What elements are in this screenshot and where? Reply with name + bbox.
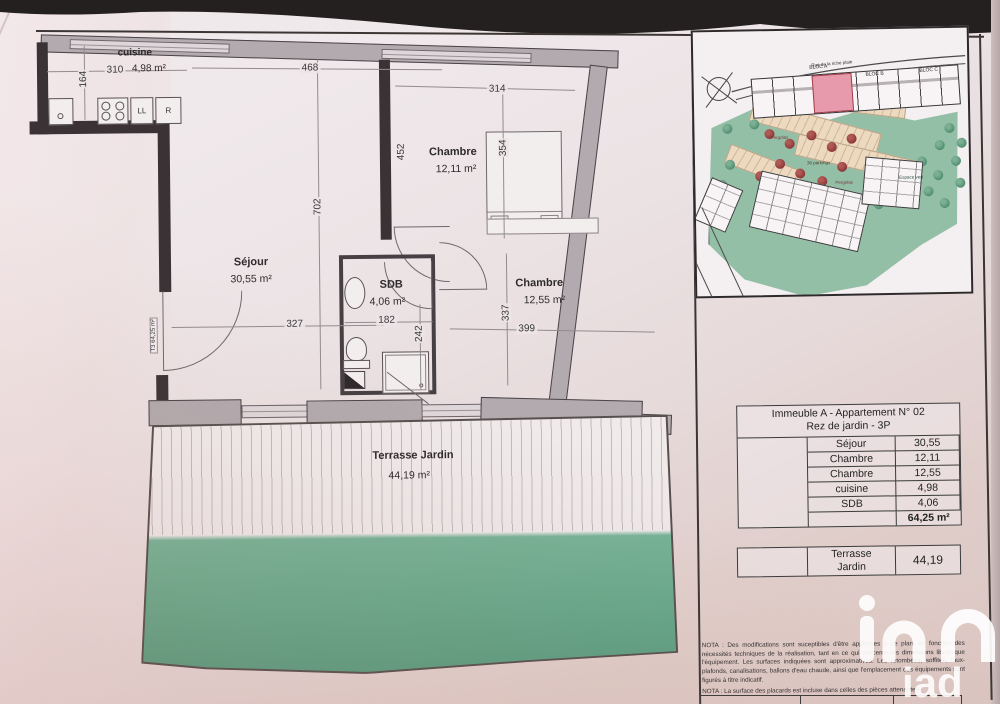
floor-plan: T3 64,25 m² LL R — [26, 12, 693, 704]
tree-green-icon — [940, 198, 950, 208]
table-row-value: 30,55 — [896, 435, 960, 451]
dim-702: 702 — [312, 197, 323, 216]
dim-182: 182 — [376, 315, 397, 326]
washbasin-icon — [344, 277, 365, 309]
lower-building — [861, 157, 923, 210]
bloc-b-label: BLOC B — [865, 71, 884, 78]
dim-399: 399 — [516, 323, 537, 334]
tree-green-icon — [725, 160, 735, 170]
window-chambre1 — [381, 49, 531, 63]
room-area-terrasse: 44,19 m² — [388, 469, 430, 481]
iad-watermark-logo: iad — [852, 590, 1000, 704]
tree-green-icon — [957, 138, 967, 148]
dim-337: 337 — [500, 303, 511, 322]
fridge-box: R — [155, 97, 181, 124]
tree-green-icon — [955, 178, 965, 188]
terrace-label-line2: Jardin — [808, 560, 895, 574]
room-label-sdb: SDB — [380, 279, 403, 291]
washer-label: LL — [131, 98, 152, 123]
table-row-label: SDB — [808, 496, 896, 512]
room-area-sdb: 4,06 m² — [370, 296, 406, 308]
toilet-bowl-icon — [346, 337, 367, 361]
kitchen-sink-icon — [48, 98, 73, 125]
dim-314: 314 — [487, 83, 508, 94]
duct-icon — [343, 371, 365, 389]
dim-452: 452 — [396, 142, 407, 161]
stove-icon — [97, 97, 128, 124]
highlighted-unit — [812, 73, 855, 114]
table-row-value: 12,11 — [896, 450, 960, 466]
table-row-label: Séjour — [808, 436, 896, 452]
terrace-spacer-cell — [738, 548, 808, 577]
table-spacer-cell — [738, 438, 809, 528]
shower-icon — [382, 351, 429, 393]
wall-sejour-left — [158, 120, 172, 292]
entrance-door-arc — [162, 290, 243, 371]
dim-line — [395, 85, 575, 90]
parkings-label: 36 parkings — [807, 160, 830, 165]
bloc-a-label: BLOC A — [809, 64, 827, 71]
table-row-value: 12,55 — [896, 465, 960, 481]
tree-green-icon — [944, 123, 954, 133]
tree-red-icon — [806, 130, 816, 140]
pergolas-label: Pergolas — [771, 135, 789, 140]
iad-watermark-text: iad — [902, 659, 963, 704]
dim-line — [450, 328, 655, 332]
tree-red-icon — [775, 159, 785, 169]
room-label-sejour: Séjour — [234, 256, 268, 268]
dim-354: 354 — [498, 138, 509, 157]
tree-red-icon — [847, 134, 857, 144]
terrace-value-cell: 44,19 — [896, 545, 960, 574]
toilet-tank-icon — [343, 360, 370, 369]
tree-green-icon — [722, 124, 732, 134]
table-row-label: cuisine — [808, 481, 896, 497]
terrace-table: Terrasse Jardin 44,19 — [737, 544, 961, 577]
room-label-chambre2: Chambre — [515, 277, 563, 289]
wall-bottom-a — [148, 399, 241, 426]
window-bottom-b — [421, 404, 481, 418]
room-area-chambre1: 12,11 m² — [436, 163, 477, 175]
entrance-type-label: T3 64,25 m² — [150, 317, 158, 353]
room-area-cuisine: 4,98 m² — [132, 63, 166, 74]
chambre2-door-leaf — [439, 289, 487, 291]
area-table-title: Immeuble A - Appartement N° 02 Rez de ja… — [737, 403, 959, 438]
table-row-value: 4,06 — [896, 495, 960, 511]
compass-icon — [701, 72, 738, 109]
room-area-sejour: 30,55 m² — [230, 273, 272, 285]
dim-468: 468 — [300, 62, 321, 73]
table-total-value: 64,25 m² — [897, 510, 961, 525]
dim-310: 310 — [105, 64, 126, 75]
dim-164: 164 — [78, 70, 89, 89]
dim-327: 327 — [284, 319, 305, 330]
wall-right-diagonal — [544, 65, 607, 438]
pergolas-label: Pergolas — [835, 180, 853, 185]
table-row-value: 4,98 — [896, 480, 960, 496]
espace-vert-label: Espace vert — [899, 174, 923, 179]
room-label-terrasse: Terrasse Jardin — [372, 449, 453, 462]
fridge-label: R — [156, 98, 180, 123]
dim-242: 242 — [414, 324, 425, 343]
table-title-line2: Rez de jardin - 3P — [737, 418, 959, 434]
tree-red-icon — [785, 139, 795, 149]
room-label-cuisine: cuisine — [118, 47, 153, 58]
terrace-label-line1: Terrasse — [808, 547, 895, 561]
room-label-chambre1: Chambre — [429, 146, 477, 158]
site-plan: Rue de la riche plaie BLOC A BLOC B BLOC… — [691, 26, 974, 299]
dim-line — [317, 59, 321, 389]
table-row-label: Chambre — [808, 451, 896, 467]
room-area-chambre2: 12,55 m² — [524, 294, 566, 306]
table-empty-cell — [809, 511, 897, 526]
wall-chambre1-partition — [379, 60, 392, 240]
window-bottom-a — [241, 405, 307, 419]
area-table: Immeuble A - Appartement N° 02 Rez de ja… — [736, 402, 962, 528]
terrace-label-cell: Terrasse Jardin — [808, 546, 896, 575]
chambre2-door-arc — [439, 242, 488, 291]
tree-green-icon — [951, 156, 961, 166]
table-row-label: Chambre — [808, 466, 896, 482]
washer-box: LL — [130, 97, 153, 124]
